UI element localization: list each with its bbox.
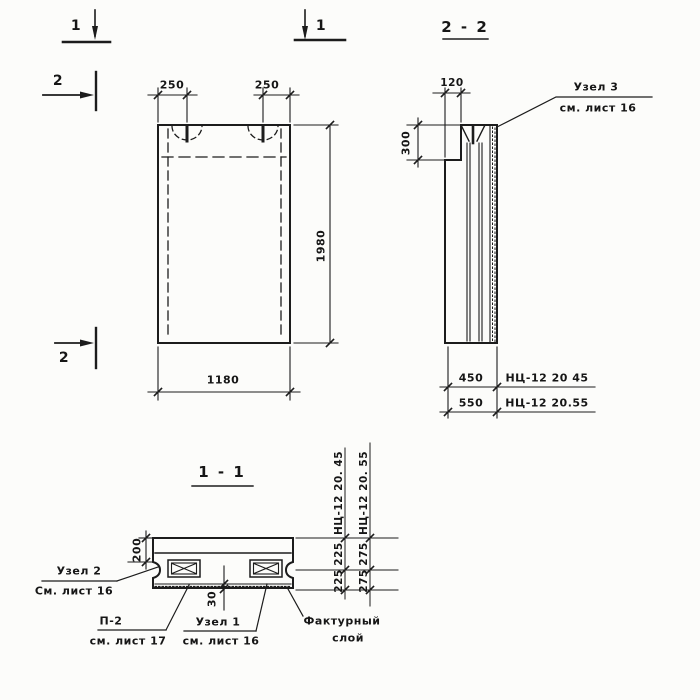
s11-title: 1 - 1 — [198, 463, 246, 481]
s11-dim-225-top: 225 — [333, 542, 345, 565]
section-mark-1-right-label: 1 — [316, 18, 326, 34]
front-dim-250-left-lines — [148, 88, 197, 122]
s11-dim-30: 30 — [206, 591, 219, 607]
section-mark-2-top-label: 2 — [53, 73, 63, 89]
front-dim-1980: 1980 — [315, 230, 328, 263]
s22-uzel3-title: Узел 3 — [574, 81, 619, 94]
s11-dim-275-top: 275 — [358, 542, 370, 565]
s11-p2-subtitle: см. лист 17 — [90, 635, 167, 648]
s11-uzel1-subtitle: см. лист 16 — [183, 635, 260, 648]
s11-void-right — [250, 560, 282, 577]
s11-factura-line1: Фактурный — [304, 615, 381, 628]
s11-type-label-45: НЦ-12 20. 45 — [333, 451, 345, 535]
lifting-loop-right-icon — [248, 126, 278, 141]
s22-dim-450: 450 — [459, 372, 483, 385]
s11-type-label-55: НЦ-12 20. 55 — [358, 451, 370, 535]
s22-facing-layer — [490, 126, 495, 342]
section-mark-2-bottom-label: 2 — [59, 350, 69, 366]
section-mark-1-left-label: 1 — [71, 18, 81, 34]
s22-dim-550: 550 — [459, 397, 483, 410]
s11-uzel2-title: Узел 2 — [57, 565, 102, 578]
s11-uzel1-title: Узел 1 — [196, 616, 241, 629]
s22-title: 2 - 2 — [441, 18, 489, 36]
lifting-loop-left-icon — [172, 126, 202, 141]
s11-uzel2-subtitle: См. лист 16 — [35, 585, 113, 598]
s11-p2-title: П-2 — [100, 615, 123, 628]
drawing-sheet: 1 1 2 2 250 250 1980 1180 2 - 2 120 300 … — [0, 0, 700, 700]
s22-channel-lines — [467, 143, 482, 341]
front-dim-250-right: 250 — [255, 79, 279, 92]
s22-dim-300: 300 — [400, 131, 413, 155]
s22-type-label-55: НЦ-12 20.55 — [505, 397, 588, 410]
s11-void-left — [168, 560, 200, 577]
s22-uzel3-subtitle: см. лист 16 — [560, 102, 637, 115]
s11-dim-275-bottom: 275 — [358, 569, 370, 592]
s22-dim-120-lines — [433, 88, 470, 157]
s11-dim-225-bottom: 225 — [333, 569, 345, 592]
s11-factura-line2: слой — [332, 632, 364, 645]
s22-dim-120: 120 — [440, 77, 463, 89]
s11-right-dim-lines — [296, 443, 398, 606]
front-dim-250-left: 250 — [160, 79, 184, 92]
s22-outline — [445, 125, 497, 343]
section-mark-2-top — [43, 72, 96, 110]
front-dim-1180: 1180 — [207, 374, 240, 387]
s11-dim-200: 200 — [131, 538, 144, 562]
front-dim-250-right-lines — [254, 88, 299, 122]
s22-type-label-45: НЦ-12 20 45 — [505, 372, 588, 385]
front-view-panel-outline — [158, 125, 290, 343]
